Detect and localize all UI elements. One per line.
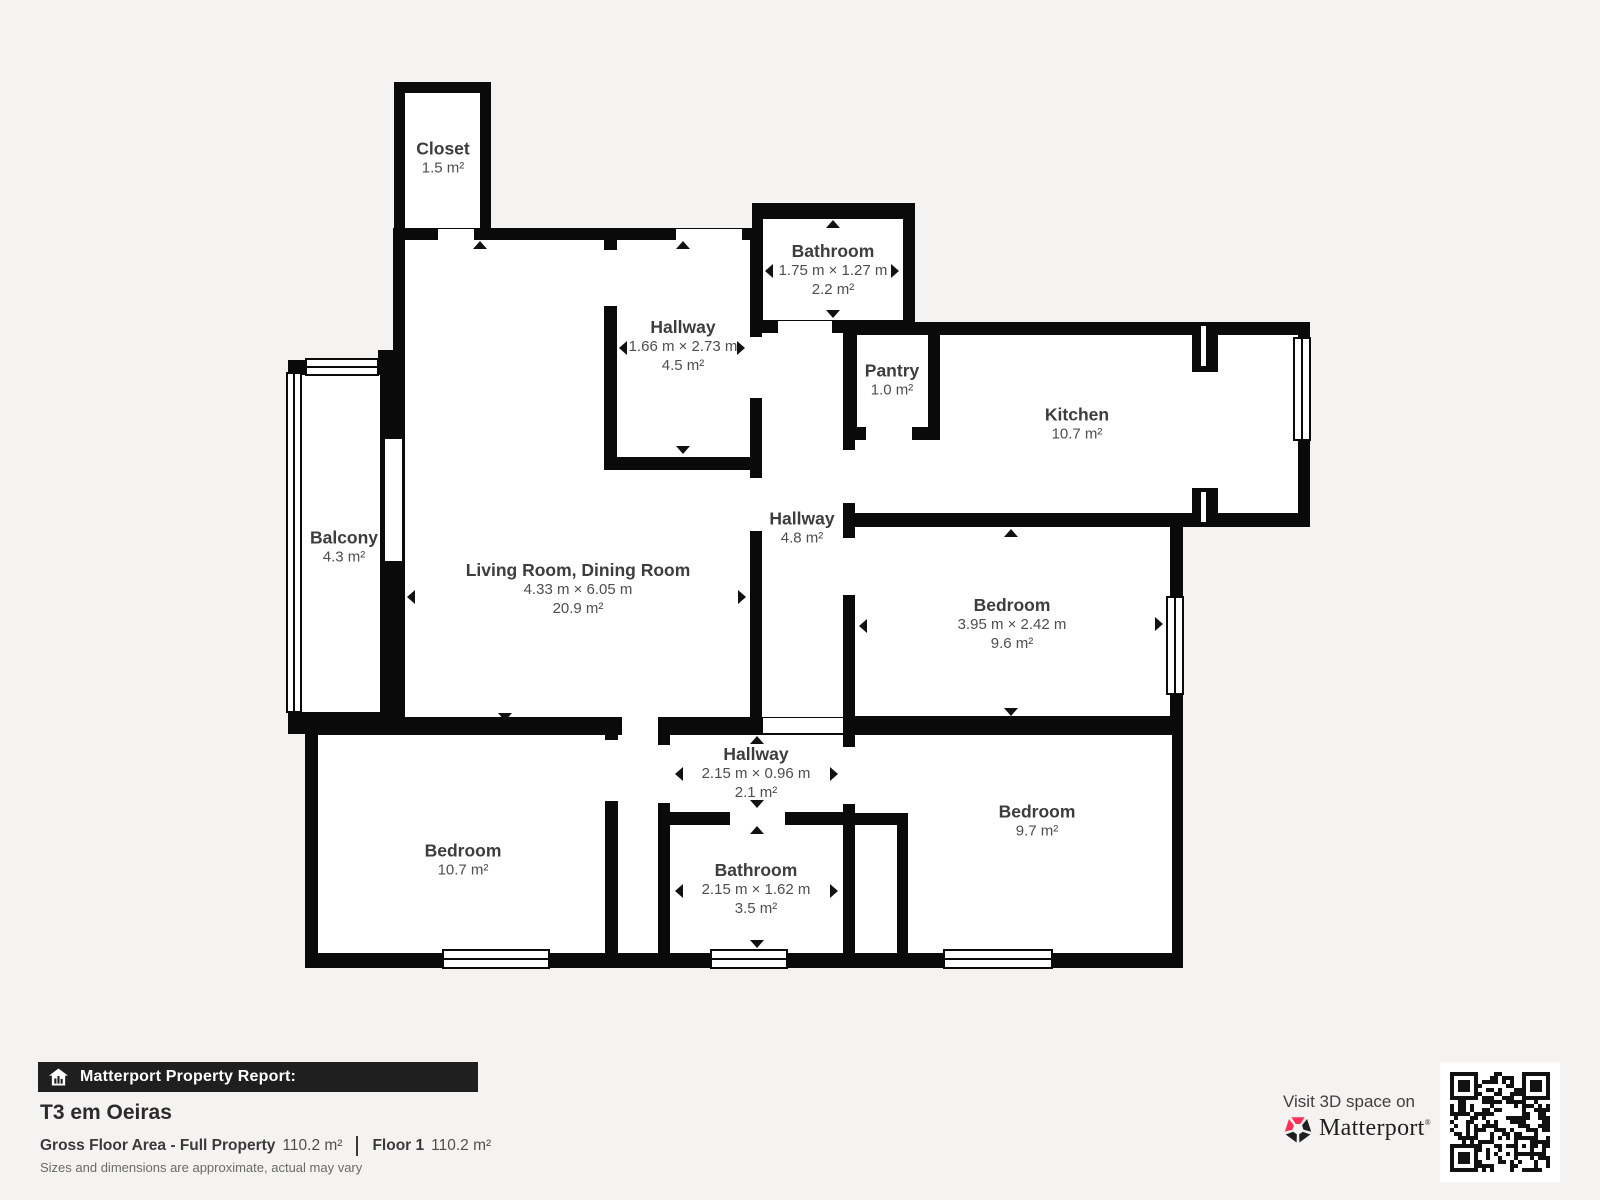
window <box>1166 596 1184 695</box>
floor-label: Floor 1 <box>372 1137 424 1155</box>
matterport-wordmark: Matterport® <box>1319 1115 1431 1142</box>
dim-arrow-right-icon <box>1155 617 1163 631</box>
room-label-kitchen: Kitchen 10.7 m² <box>1045 405 1109 444</box>
door-opening <box>730 812 785 825</box>
door-opening <box>658 745 670 803</box>
dim-arrow-right-icon <box>738 590 746 604</box>
room-kitchen <box>855 440 940 513</box>
room-label-hallway-central: Hallway 4.8 m² <box>769 509 834 548</box>
door-opening <box>843 747 855 804</box>
dim-arrow-up-icon <box>750 826 764 834</box>
dim-arrow-up-icon <box>473 241 487 249</box>
dim-arrow-down-icon <box>750 940 764 948</box>
wall <box>288 712 388 734</box>
wall-jamb <box>1201 492 1206 522</box>
matterport-brand: Matterport® <box>1283 1113 1431 1143</box>
door-opening <box>843 450 855 503</box>
room-label-balcony: Balcony 4.3 m² <box>310 528 378 567</box>
dim-arrow-left-icon <box>765 264 773 278</box>
window <box>442 949 550 969</box>
door-opening <box>866 426 912 440</box>
dim-arrow-left-icon <box>859 619 867 633</box>
separator <box>356 1136 358 1156</box>
dim-arrow-right-icon <box>737 341 745 355</box>
window <box>1293 337 1311 441</box>
registered-mark: ® <box>1425 1118 1431 1127</box>
property-title: T3 em Oeiras <box>40 1101 172 1125</box>
report-banner: Matterport Property Report: <box>38 1062 478 1092</box>
room-living-room <box>405 240 604 470</box>
room-label-living-room: Living Room, Dining Room 4.33 m × 6.05 m… <box>466 560 691 618</box>
kitchen-alcove-passage <box>1192 372 1218 488</box>
door-opening <box>750 478 762 531</box>
dim-arrow-down-icon <box>1004 708 1018 716</box>
dim-arrow-up-icon <box>826 220 840 228</box>
door-opening <box>676 229 742 240</box>
visit-3d-text: Visit 3D space on <box>1254 1092 1444 1112</box>
balcony-sliding-door <box>383 437 404 563</box>
door-opening <box>763 718 843 733</box>
gross-floor-area-label: Gross Floor Area - Full Property <box>40 1137 275 1155</box>
dim-arrow-right-icon <box>830 884 838 898</box>
window <box>286 372 302 713</box>
floor-value: 110.2 m² <box>431 1137 491 1155</box>
dim-arrow-down-icon <box>826 310 840 318</box>
room-label-bedroom-bottom-right: Bedroom 9.7 m² <box>999 802 1076 841</box>
door-opening <box>438 229 474 240</box>
gross-floor-area-value: 110.2 m² <box>282 1137 342 1155</box>
qr-code <box>1440 1062 1560 1182</box>
room-label-bathroom-top: Bathroom 1.75 m × 1.27 m 2.2 m² <box>779 241 888 299</box>
dim-arrow-up-icon <box>750 736 764 744</box>
dim-arrow-up-icon <box>1004 529 1018 537</box>
wall <box>855 813 908 825</box>
report-banner-label: Matterport Property Report: <box>80 1068 296 1086</box>
door-opening <box>843 538 855 595</box>
window <box>710 949 788 969</box>
wall <box>897 825 908 953</box>
dim-arrow-down-icon <box>676 446 690 454</box>
window <box>305 358 379 376</box>
kitchen-alcove <box>1218 335 1298 513</box>
dim-arrow-right-icon <box>830 767 838 781</box>
dim-arrow-up-icon <box>676 241 690 249</box>
dim-arrow-left-icon <box>675 884 683 898</box>
disclaimer-text: Sizes and dimensions are approximate, ac… <box>40 1160 362 1175</box>
room-label-hallway-top: Hallway 1.66 m × 2.73 m 4.5 m² <box>629 317 738 375</box>
room-label-hallway-bottom: Hallway 2.15 m × 0.96 m 2.1 m² <box>702 744 811 802</box>
floor-area-line: Gross Floor Area - Full Property 110.2 m… <box>40 1136 491 1156</box>
dim-arrow-right-icon <box>891 264 899 278</box>
bedroom-vestibule <box>618 735 658 953</box>
door-opening <box>622 717 658 735</box>
room-label-bathroom-bottom: Bathroom 2.15 m × 1.62 m 3.5 m² <box>702 860 811 918</box>
property-report-page: Closet 1.5 m² Bathroom 1.75 m × 1.27 m 2… <box>0 0 1600 1200</box>
wall-jamb <box>1201 326 1206 366</box>
door-opening <box>778 321 832 333</box>
door-opening <box>604 250 617 306</box>
room-label-pantry: Pantry 1.0 m² <box>865 361 919 400</box>
dim-arrow-left-icon <box>407 590 415 604</box>
dim-arrow-left-icon <box>619 341 627 355</box>
door-opening <box>750 337 762 398</box>
room-label-closet: Closet 1.5 m² <box>416 139 469 178</box>
door-opening <box>605 740 618 801</box>
window <box>943 949 1053 969</box>
room-label-bedroom-right: Bedroom 3.95 m × 2.42 m 9.6 m² <box>958 595 1067 653</box>
dim-arrow-left-icon <box>675 767 683 781</box>
dim-arrow-down-icon <box>498 713 512 721</box>
matterport-logo-icon <box>1283 1113 1313 1143</box>
matterport-house-icon <box>49 1068 68 1086</box>
room-label-bedroom-left: Bedroom 10.7 m² <box>425 841 502 880</box>
